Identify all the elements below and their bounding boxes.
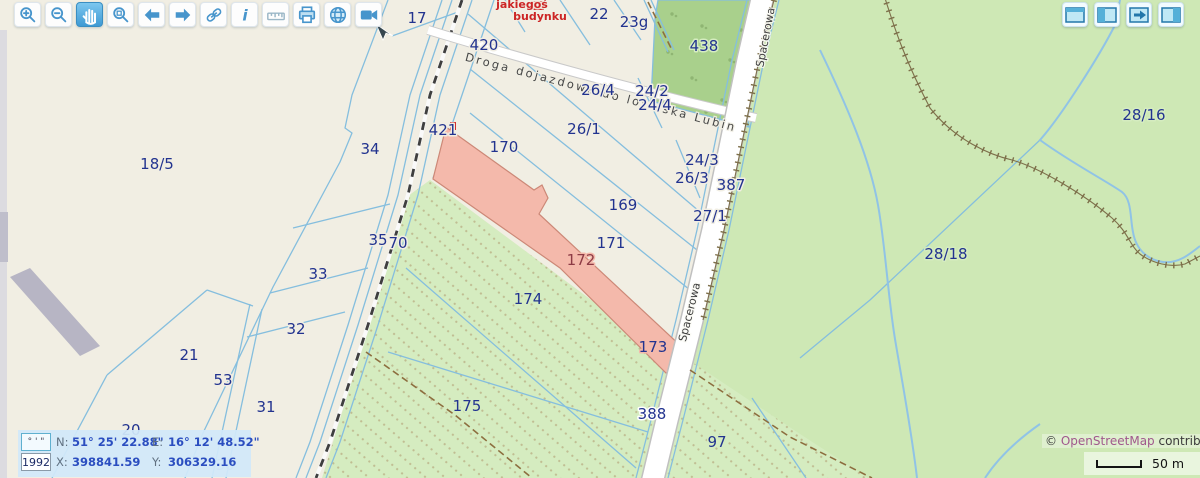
- svg-text:22: 22: [589, 5, 608, 23]
- map-window-button[interactable]: [1062, 2, 1088, 27]
- info-icon: i: [234, 5, 256, 25]
- globe-icon: [327, 5, 349, 25]
- scale-bar: 50 m: [1084, 452, 1200, 475]
- svg-text:27/1: 27/1: [693, 207, 727, 225]
- east-value: 16° 12' 48.52": [168, 435, 260, 449]
- svg-text:97: 97: [707, 433, 726, 451]
- expand-panel-button[interactable]: [1126, 2, 1152, 27]
- globe-button[interactable]: [324, 2, 351, 27]
- svg-text:173: 173: [639, 338, 668, 356]
- epsg-1992-box[interactable]: 1992: [21, 453, 51, 471]
- svg-text:33: 33: [308, 265, 327, 283]
- measure-button[interactable]: [262, 2, 289, 27]
- svg-text:18/5: 18/5: [140, 155, 174, 173]
- x-value: 398841.59: [72, 455, 152, 469]
- north-value: 51° 25' 22.88": [72, 435, 152, 449]
- svg-text:26/1: 26/1: [567, 120, 601, 138]
- svg-text:31: 31: [256, 398, 275, 416]
- zoom-selection-button[interactable]: [107, 2, 134, 27]
- hand-icon: [79, 5, 101, 25]
- svg-text:171: 171: [597, 234, 626, 252]
- svg-text:70: 70: [388, 234, 407, 252]
- openstreetmap-link[interactable]: OpenStreetMap: [1061, 434, 1155, 448]
- svg-text:28/16: 28/16: [1122, 106, 1165, 124]
- svg-text:24/4: 24/4: [638, 96, 672, 114]
- north-label: N:: [56, 435, 72, 449]
- svg-text:35: 35: [368, 231, 387, 249]
- annotation-text-line2: budynku: [513, 10, 567, 23]
- camera-icon: [358, 5, 380, 25]
- video-button[interactable]: [355, 2, 382, 27]
- svg-text:34: 34: [360, 140, 379, 158]
- panel-arrow-icon: [1127, 4, 1151, 26]
- printer-icon: [296, 5, 318, 25]
- next-view-button[interactable]: [169, 2, 196, 27]
- ruler-icon: [265, 5, 287, 25]
- svg-text:387: 387: [717, 176, 746, 194]
- svg-text:23g: 23g: [620, 13, 649, 31]
- svg-text:26/4: 26/4: [581, 81, 615, 99]
- scale-bar-bracket: [1096, 460, 1142, 468]
- svg-text:32: 32: [286, 320, 305, 338]
- svg-text:169: 169: [609, 196, 638, 214]
- window-icon: [1063, 4, 1087, 26]
- print-button[interactable]: [293, 2, 320, 27]
- y-label: Y:: [152, 455, 168, 469]
- svg-text:388: 388: [638, 405, 667, 423]
- coordinate-panel: ° ' " N: 51° 25' 22.88" E: 16° 12' 48.52…: [18, 430, 251, 477]
- arrow-left-icon: [141, 5, 163, 25]
- pan-button[interactable]: [76, 2, 103, 27]
- svg-text:175: 175: [453, 397, 482, 415]
- link-button[interactable]: [200, 2, 227, 27]
- dms-format-box[interactable]: ° ' ": [21, 433, 51, 451]
- svg-text:i: i: [242, 6, 248, 24]
- svg-text:421: 421: [429, 121, 458, 139]
- svg-text:172: 172: [567, 251, 596, 269]
- panel-toggle-bar: [1062, 2, 1184, 27]
- svg-text:21: 21: [179, 346, 198, 364]
- svg-text:174: 174: [514, 290, 543, 308]
- svg-text:17: 17: [407, 9, 426, 27]
- svg-text:28/18: 28/18: [924, 245, 967, 263]
- svg-text:53: 53: [213, 371, 232, 389]
- map-application: jakiegoś budynku Spacerowa Spacerowa Dro…: [0, 0, 1200, 478]
- panel-left-icon: [1095, 4, 1119, 26]
- zoom-out-button[interactable]: [45, 2, 72, 27]
- right-panel-button[interactable]: [1158, 2, 1184, 27]
- magnifier-minus-icon: [48, 5, 70, 25]
- map-attribution: © OpenStreetMap contributors: [1042, 434, 1200, 448]
- svg-text:26/3: 26/3: [675, 169, 709, 187]
- x-label: X:: [56, 455, 72, 469]
- info-button[interactable]: i: [231, 2, 258, 27]
- magnifier-plus-icon: [17, 5, 39, 25]
- svg-text:24/3: 24/3: [685, 151, 719, 169]
- previous-view-button[interactable]: [138, 2, 165, 27]
- map-canvas[interactable]: jakiegoś budynku Spacerowa Spacerowa Dro…: [0, 0, 1200, 478]
- panel-right-icon: [1159, 4, 1183, 26]
- magnifier-box-icon: [110, 5, 132, 25]
- copyright-symbol: ©: [1045, 434, 1057, 448]
- east-label: E:: [152, 435, 168, 449]
- zoom-in-button[interactable]: [14, 2, 41, 27]
- contributors-text: contributors: [1155, 434, 1200, 448]
- svg-text:438: 438: [690, 37, 719, 55]
- scale-bar-label: 50 m: [1152, 456, 1184, 471]
- y-value: 306329.16: [168, 455, 236, 469]
- map-toolbar: i: [14, 2, 382, 27]
- arrow-right-icon: [172, 5, 194, 25]
- svg-text:420: 420: [470, 36, 499, 54]
- chain-icon: [203, 5, 225, 25]
- left-panel-button[interactable]: [1094, 2, 1120, 27]
- svg-text:170: 170: [490, 138, 519, 156]
- coordinate-row-projected: 1992 X: 398841.59 Y: 306329.16: [21, 452, 248, 472]
- coordinate-row-geographic: ° ' " N: 51° 25' 22.88" E: 16° 12' 48.52…: [21, 432, 248, 452]
